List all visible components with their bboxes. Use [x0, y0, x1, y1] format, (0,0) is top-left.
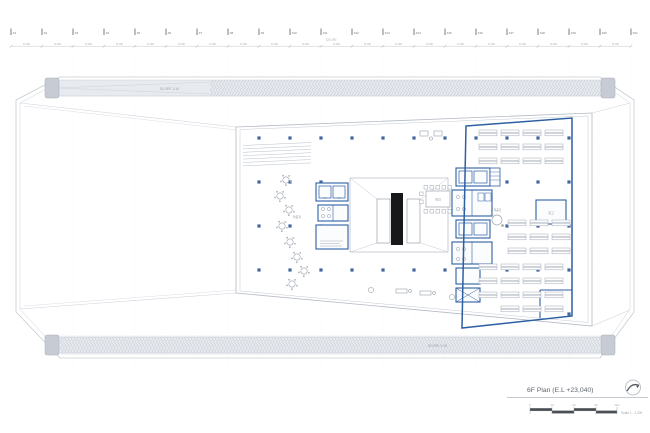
desk [523, 295, 541, 298]
band-cap [601, 335, 615, 355]
desk [530, 237, 548, 240]
bay-dimension: 8,100 [457, 42, 464, 46]
column-marker [474, 136, 477, 139]
grid-label: X13 [385, 31, 391, 35]
meeting-label: 회의 [435, 197, 441, 202]
desk [523, 264, 541, 267]
desk [523, 158, 541, 161]
bay-dimension: 8,100 [178, 42, 185, 46]
column-marker [257, 268, 260, 271]
desk [479, 133, 497, 136]
desk [479, 147, 497, 150]
chair [430, 186, 434, 190]
bay-dimension: 8,100 [333, 42, 340, 46]
bay-dimension: 8,100 [240, 42, 247, 46]
desk [501, 264, 519, 267]
band-cap [45, 335, 59, 355]
bay-dimension: 8,100 [271, 42, 278, 46]
core-left [316, 183, 348, 249]
desk [545, 278, 563, 281]
lounge-chair [306, 266, 308, 268]
band-cap [45, 78, 59, 98]
lounge-chair [294, 243, 296, 245]
desk [508, 248, 526, 251]
desk [523, 147, 541, 150]
grid-label: X11 [323, 31, 328, 35]
chair [436, 210, 440, 214]
service-room [316, 225, 348, 249]
chair [430, 210, 434, 214]
chair [442, 210, 446, 214]
bay-dimension: 8,100 [54, 42, 61, 46]
bay-dimension: 8,100 [85, 42, 92, 46]
chair [442, 186, 446, 190]
chair [420, 192, 424, 196]
storage-label: 창고 [548, 210, 554, 215]
lounge-chair [298, 272, 300, 274]
desk [523, 133, 541, 136]
desk [501, 147, 519, 150]
lounge-chair [303, 275, 305, 277]
slope-annotation-top: SLOPE 1:10 [160, 87, 179, 91]
chair [424, 186, 428, 190]
lounge-chair [290, 181, 292, 183]
desk [530, 220, 548, 223]
lounge-chair [296, 261, 298, 263]
desk [501, 130, 519, 133]
column-marker [567, 136, 570, 139]
lounge-chair [279, 200, 281, 202]
lounge-chair [285, 205, 287, 207]
desk [501, 309, 519, 312]
desk [545, 309, 563, 312]
lounge-chair [284, 197, 286, 199]
desk [508, 251, 526, 254]
column-marker [412, 268, 415, 271]
desk [545, 130, 563, 133]
lounge-chair [301, 258, 303, 260]
desk [545, 292, 563, 295]
lounge-chair [281, 230, 283, 232]
scale-tick-label: 30 [594, 403, 598, 407]
grid-ruler: 110,100 X18,100X28,100X38,100X48,100X58,… [10, 29, 638, 48]
bay-dimension: 8,100 [23, 42, 30, 46]
desk [501, 278, 519, 281]
scale-tick-label: 0 [529, 403, 531, 407]
column-marker [412, 136, 415, 139]
lounge-chair [292, 237, 294, 239]
elevator-car [474, 223, 487, 235]
grid-label: X21 [633, 31, 639, 35]
desk [545, 306, 563, 309]
lounge-chair [308, 272, 310, 274]
column-marker [288, 136, 291, 139]
desk [501, 295, 519, 298]
lounge-chair [299, 252, 301, 254]
lounge-chair [282, 175, 284, 177]
desk [545, 267, 563, 270]
column-marker [381, 136, 384, 139]
desk [552, 234, 570, 237]
elevator-car [333, 186, 345, 198]
bay-dimension: 8,100 [116, 42, 123, 46]
desk [508, 237, 526, 240]
column-marker [288, 224, 291, 227]
desk [523, 161, 541, 164]
scale-segment [552, 411, 574, 414]
lounge-chair [288, 214, 290, 216]
column-marker [505, 136, 508, 139]
desk [501, 161, 519, 164]
desk [501, 306, 519, 309]
desk [523, 267, 541, 270]
scale-label: Scale 1 : 1,200 [621, 411, 642, 415]
desk [552, 237, 570, 240]
desk [523, 281, 541, 284]
desk [530, 248, 548, 251]
column-marker [350, 268, 353, 271]
desk [479, 161, 497, 164]
column-marker [319, 136, 322, 139]
service-room [456, 268, 480, 284]
bay-dimension: 8,100 [209, 42, 216, 46]
lounge-label: 라운지 [293, 214, 302, 219]
lounge-chair [288, 279, 290, 281]
elevator-car [459, 223, 472, 235]
desk [479, 292, 497, 295]
desk [479, 267, 497, 270]
desk [552, 223, 570, 226]
lounge-chair [293, 211, 295, 213]
drawing-title: 6F Plan (E.L +23,040) [527, 387, 593, 394]
escalator [377, 193, 420, 245]
column-marker [350, 136, 353, 139]
grid-label: X16 [478, 31, 484, 35]
grid-label: X20 [602, 31, 608, 35]
slope-annotation-bottom: SLOPE 1:10 [428, 344, 447, 348]
lounge-chair [289, 246, 291, 248]
desk [545, 147, 563, 150]
column-marker [319, 268, 322, 271]
desk [530, 223, 548, 226]
chair [436, 186, 440, 190]
chair [424, 210, 428, 214]
chair [420, 200, 424, 204]
bay-dimension: 8,100 [426, 42, 433, 46]
bay-dimension: 8,100 [519, 42, 526, 46]
desk [552, 251, 570, 254]
desk [523, 292, 541, 295]
column-marker [443, 268, 446, 271]
column-marker [567, 180, 570, 183]
desk [552, 248, 570, 251]
desk [501, 267, 519, 270]
plant [449, 294, 454, 299]
bay-dimension: 8,100 [364, 42, 371, 46]
lounge-chair [296, 285, 298, 287]
lounge-chair [294, 279, 296, 281]
column-marker [257, 224, 260, 227]
grid-label: X2 [44, 31, 48, 35]
desk [545, 133, 563, 136]
desk [501, 133, 519, 136]
stair [490, 168, 500, 186]
grid-label: X6 [168, 31, 172, 35]
lounge-chair [286, 237, 288, 239]
grid-label: X10 [292, 31, 298, 35]
bay-dimension: 8,100 [395, 42, 402, 46]
lounge-chair [286, 285, 288, 287]
desk [508, 234, 526, 237]
grid-label: X7 [199, 31, 203, 35]
plant [368, 287, 373, 292]
scale-bar: 010203040m [529, 403, 620, 414]
pantry-label: 휴게공간 [490, 207, 501, 212]
scale-tick-label: 40m [614, 403, 620, 407]
column-marker [505, 180, 508, 183]
desk [523, 309, 541, 312]
column-marker [288, 268, 291, 271]
title-block: 6F Plan (E.L +23,040) 010203040m Scale 1… [507, 380, 648, 415]
desk [508, 220, 526, 223]
lounge-chair [276, 191, 278, 193]
chair [448, 210, 452, 214]
desk [523, 130, 541, 133]
desk [501, 292, 519, 295]
column-marker [536, 136, 539, 139]
desk [545, 158, 563, 161]
grid-label: X5 [137, 31, 141, 35]
lounge-chair [274, 197, 276, 199]
grid-label: X15 [447, 31, 453, 35]
desk [479, 264, 497, 267]
column-marker [567, 268, 570, 271]
column-marker [443, 136, 446, 139]
lounge-chair [284, 221, 286, 223]
grid-label: X18 [540, 31, 546, 35]
desk [523, 278, 541, 281]
lounge-chair [276, 227, 278, 229]
bay-dimension: 8,100 [302, 42, 309, 46]
chair [448, 186, 452, 190]
desk [501, 158, 519, 161]
desk [523, 144, 541, 147]
scale-tick-label: 20 [572, 403, 576, 407]
desk [508, 223, 526, 226]
column-marker [257, 180, 260, 183]
lounge-chair [291, 205, 293, 207]
grid-label: X17 [509, 31, 515, 35]
north-arrow-icon [626, 380, 641, 395]
bay-dimension: 8,100 [147, 42, 154, 46]
lounge-chair [282, 191, 284, 193]
desk [501, 144, 519, 147]
desk [479, 144, 497, 147]
grid-label: X9 [261, 31, 265, 35]
bay-dimension: 8,100 [488, 42, 495, 46]
desk [545, 264, 563, 267]
elevator-car [319, 186, 331, 198]
bay-dimension: 8,100 [612, 42, 619, 46]
lounge-chair [288, 175, 290, 177]
lounge-chair [283, 211, 285, 213]
desk [545, 281, 563, 284]
desk [530, 251, 548, 254]
floor-plan-svg: SLOPE 1:10 SLOPE 1:10 라운지 [0, 0, 650, 433]
desk [552, 220, 570, 223]
grid-label: X8 [230, 31, 234, 35]
roof-band-top: SLOPE 1:10 [45, 78, 615, 98]
floor-plan-sheet: SLOPE 1:10 SLOPE 1:10 라운지 [0, 0, 650, 433]
desk [523, 306, 541, 309]
overall-dimension: 110,100 [326, 38, 337, 42]
desk [479, 158, 497, 161]
lounge-chair [285, 184, 287, 186]
grid-label: X3 [75, 31, 79, 35]
desk [479, 295, 497, 298]
lounge-chair [284, 243, 286, 245]
desk [545, 295, 563, 298]
escalator-core [391, 193, 403, 245]
column-marker [536, 180, 539, 183]
grid-label: X19 [571, 31, 577, 35]
lounge-chair [293, 252, 295, 254]
lounge-chair [278, 221, 280, 223]
bay-dimension: 8,100 [581, 42, 588, 46]
bay-dimension: 8,100 [550, 42, 557, 46]
lounge-chair [291, 288, 293, 290]
roof-band-bottom: SLOPE 1:10 [45, 335, 615, 355]
desk [479, 130, 497, 133]
desk [479, 278, 497, 281]
desk [479, 281, 497, 284]
desk [545, 161, 563, 164]
band-cap [601, 78, 615, 98]
scale-segment [596, 411, 617, 414]
scale-segment [574, 408, 596, 411]
column-marker [567, 312, 570, 315]
grid-label: X12 [354, 31, 360, 35]
elevator-car [474, 171, 487, 183]
lounge-chair [286, 227, 288, 229]
scale-segment [530, 408, 552, 411]
lounge-chair [300, 266, 302, 268]
desk [501, 281, 519, 284]
desk [530, 234, 548, 237]
grid-label: X14 [416, 31, 422, 35]
grid-label: X4 [106, 31, 110, 35]
lounge-chair [280, 181, 282, 183]
column-marker [381, 268, 384, 271]
grid-label: X1 [13, 31, 17, 35]
column-marker [257, 136, 260, 139]
desk [545, 144, 563, 147]
scale-tick-label: 10 [550, 403, 554, 407]
lounge-chair [291, 258, 293, 260]
